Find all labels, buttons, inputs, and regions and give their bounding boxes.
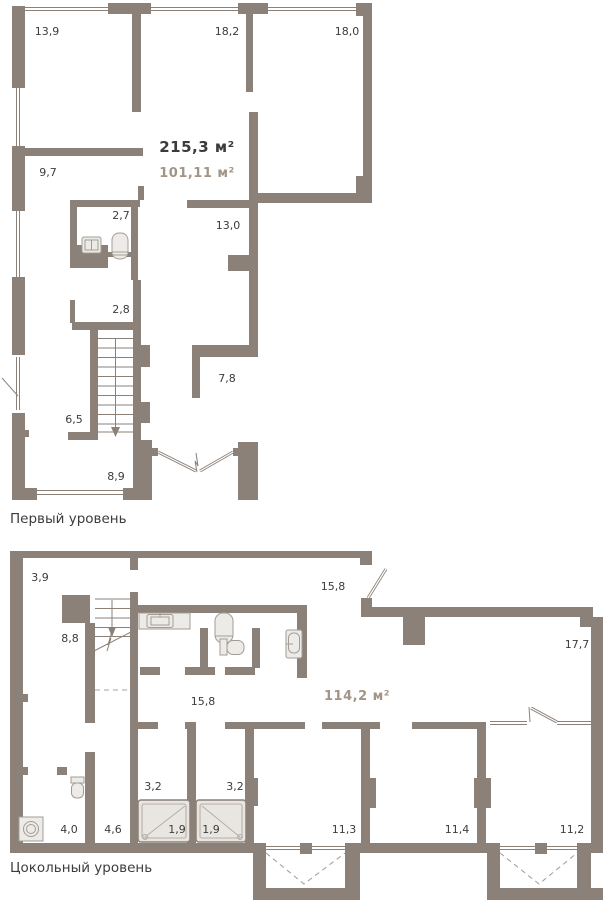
level-1-stairs-icon (98, 338, 133, 437)
room-label: 6,5 (65, 413, 83, 426)
room-label: 3,2 (144, 780, 162, 793)
room-label: 4,0 (60, 823, 78, 836)
bathroom-sink-icon (286, 630, 302, 658)
room-label: 18,0 (335, 25, 360, 38)
room-label: 4,6 (104, 823, 122, 836)
room-label: 8,8 (61, 632, 79, 645)
room-label: 1,9 (202, 823, 220, 836)
room-label: 2,7 (112, 209, 130, 222)
light-well-dashed-lines (266, 853, 577, 884)
room-15-8-door-icon (368, 569, 386, 598)
sink-icon (82, 237, 101, 253)
level-0-plan: 3,9 15,8 8,8 17,7 15,8 114,2 м² 3,2 3,2 … (10, 551, 603, 900)
room-label: 11,2 (560, 823, 585, 836)
room-label: 15,8 (321, 580, 346, 593)
level-0-walls (10, 551, 603, 900)
level-0-stairs-icon (92, 599, 131, 690)
floor-plans-canvas: 13,9 18,2 18,0 9,7 215,3 м² 101,11 м² 2,… (0, 0, 605, 900)
room-label: 9,7 (39, 166, 57, 179)
level-0-area-label: 114,2 м² (324, 689, 390, 704)
total-area-label: 215,3 м² (159, 138, 235, 156)
entrance-double-door-icon (152, 448, 239, 472)
open-window-leaf-icon (2, 378, 18, 396)
room-label: 3,9 (31, 571, 49, 584)
secondary-area-label: 101,11 м² (159, 166, 235, 181)
toilet-icon (112, 233, 128, 259)
room-label: 3,2 (226, 780, 244, 793)
toilet-icon (220, 639, 244, 655)
room-label: 1,9 (168, 823, 186, 836)
level-1-caption: Первый уровень (10, 511, 127, 527)
washing-machine-icon (19, 817, 43, 841)
kitchen-counter-sink-icon (139, 613, 190, 629)
level-0-caption: Цокольный уровень (10, 860, 152, 876)
room-label: 7,8 (218, 372, 236, 385)
room-label: 15,8 (191, 695, 216, 708)
room-11-2-door-icon (529, 707, 557, 722)
toilet-icon (71, 777, 84, 798)
floor-plan-page: 13,9 18,2 18,0 9,7 215,3 м² 101,11 м² 2,… (0, 0, 605, 900)
room-label: 11,4 (445, 823, 470, 836)
room-label: 17,7 (565, 638, 590, 651)
room-label: 13,0 (216, 219, 241, 232)
level-0-windows (266, 722, 593, 850)
room-label: 8,9 (107, 470, 125, 483)
room-label: 2,8 (112, 303, 130, 316)
room-label: 13,9 (35, 25, 60, 38)
level-1-plan: 13,9 18,2 18,0 9,7 215,3 м² 101,11 м² 2,… (2, 3, 372, 527)
level-1-windows (2, 8, 356, 495)
room-label: 18,2 (215, 25, 240, 38)
room-label: 11,3 (332, 823, 357, 836)
